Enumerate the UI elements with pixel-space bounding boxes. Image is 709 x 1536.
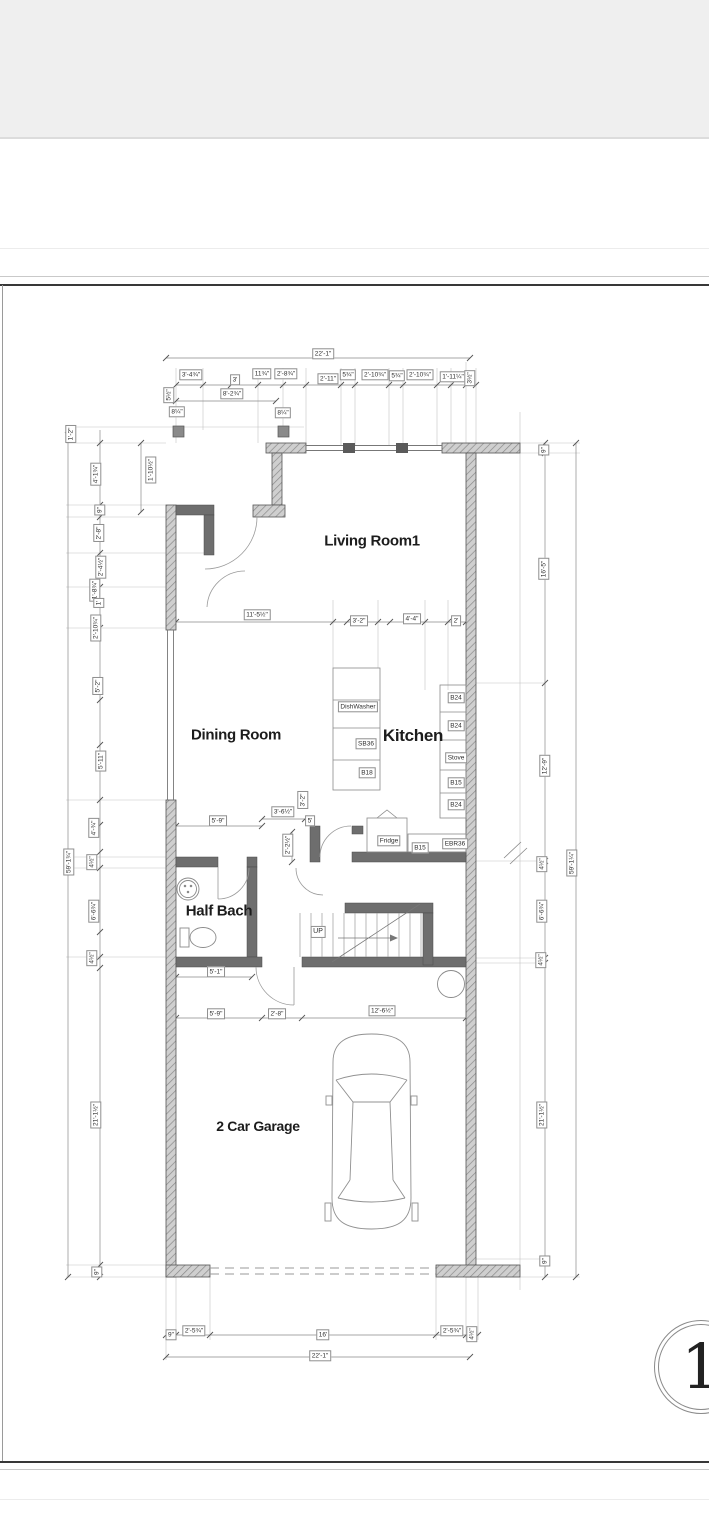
porch-post xyxy=(173,426,184,437)
dim-label: 8'-2¾" xyxy=(220,388,243,399)
dim-label: 5'-11" xyxy=(95,750,106,771)
dim-label: 3'-6½" xyxy=(271,806,294,817)
dim-label: 2'-8" xyxy=(93,524,104,542)
dim-label: 2'-4½" xyxy=(95,555,106,578)
dim-label: 2'-10¾" xyxy=(90,615,101,642)
room-label-half-bath: Half Bach xyxy=(186,903,253,920)
dim-label: 11¾" xyxy=(252,368,271,379)
dim-label: 21'-1½" xyxy=(90,1102,101,1129)
dim-label: 4'-¾" xyxy=(88,818,99,838)
dim-label: 3'-4¾" xyxy=(179,369,202,380)
dim-label: 5½" xyxy=(163,387,174,403)
dim-label: 22'-1" xyxy=(312,348,334,359)
dim-label: 1'-10½" xyxy=(145,457,156,484)
dim-label: 4½" xyxy=(535,952,546,968)
dim-label: 6'-6¾" xyxy=(536,899,547,922)
dim-label: 2'-5¾" xyxy=(182,1325,205,1336)
dim-label: 4½" xyxy=(86,950,97,966)
appliance-label-b18: B18 xyxy=(359,767,376,778)
dim-label: 3' xyxy=(230,374,240,385)
dim-label: 3'-2" xyxy=(297,791,308,809)
dim-label: 3'-2" xyxy=(350,615,368,626)
dim-label: 2'-10¾" xyxy=(407,369,434,380)
dim-label: 22'-1" xyxy=(309,1350,331,1361)
cabinet-label-ebr36: EBR36 xyxy=(442,838,468,849)
dim-label: 8¼" xyxy=(169,406,185,417)
floor-plan-page: { "plan": { "sheet_number": "1", "rooms"… xyxy=(0,0,709,1536)
dim-label: 3½" xyxy=(464,370,475,386)
dim-label: 2' xyxy=(451,615,461,626)
dim-label: 2'-10¾" xyxy=(362,369,389,380)
dim-label: 5' xyxy=(305,815,315,826)
window-mullion xyxy=(396,443,408,453)
sheet-number: 1 xyxy=(681,1336,709,1398)
cabinet-label-b24: B24 xyxy=(448,799,465,810)
dim-label: 5'-9" xyxy=(209,815,227,826)
dim-label: 5'-9" xyxy=(207,1008,225,1019)
dim-label: 1'-2" xyxy=(65,425,76,443)
bath-sink xyxy=(177,878,199,900)
cabinet-label-b15: B15 xyxy=(448,777,465,788)
dim-label: 5'-1" xyxy=(207,966,225,977)
appliance-label-stove: Stove xyxy=(445,752,467,763)
dim-label: 16' xyxy=(316,1329,329,1340)
stair-arrow xyxy=(390,935,398,942)
appliance-label-sb36: SB36 xyxy=(356,738,377,749)
dim-label: 12'-9" xyxy=(539,755,550,777)
dim-label: 4½" xyxy=(466,1326,477,1342)
dim-label: 4½" xyxy=(536,856,547,872)
dim-label: 4'-4" xyxy=(403,613,421,624)
room-label-garage: 2 Car Garage xyxy=(216,1118,300,1134)
dim-label: 2'-11" xyxy=(317,373,338,384)
garage-door-dashed xyxy=(210,1268,436,1274)
dim-label: 2'-8¾" xyxy=(274,368,297,379)
dim-label: 9" xyxy=(538,445,549,456)
cabinet-label-b24: B24 xyxy=(448,692,465,703)
porch-post xyxy=(278,426,289,437)
dim-label-overall: 59'-1¼" xyxy=(566,850,577,877)
appliance-label-dishwasher: DishWasher xyxy=(338,701,378,712)
dim-label-overall: 59'-1¾" xyxy=(63,849,74,876)
dim-label: 1' xyxy=(93,598,104,608)
dim-label: 8¼" xyxy=(275,407,291,418)
dim-label: 2'-2½" xyxy=(282,833,293,856)
dim-label: 21'-1½" xyxy=(536,1102,547,1129)
room-label-living: Living Room1 xyxy=(324,533,420,550)
cabinet-label-b15: B15 xyxy=(412,842,429,853)
kitchen-cabinets xyxy=(408,685,466,852)
dim-label: 6'-6¾" xyxy=(88,899,99,922)
dim-label: 16'-5" xyxy=(538,558,549,580)
dim-label: 2'-5¾" xyxy=(440,1325,463,1336)
door-arcs xyxy=(205,517,351,1005)
room-label-dining: Dining Room xyxy=(191,727,281,744)
dim-label: 1'-11¼" xyxy=(440,371,467,382)
stairs-up-label: UP xyxy=(311,926,326,938)
dim-label: 5'-2" xyxy=(92,677,103,695)
extension-lines xyxy=(66,362,580,1360)
dim-label: 2'-8" xyxy=(268,1008,286,1019)
dim-label: 12'-6½" xyxy=(369,1005,396,1016)
sheet-number-inner-circle: 1 xyxy=(658,1324,709,1410)
car-top-view xyxy=(325,1034,418,1229)
dim-label: 11'-5½" xyxy=(244,609,271,620)
dim-label: 9" xyxy=(91,1267,102,1278)
dimension-lines xyxy=(68,358,576,1357)
toilet xyxy=(180,928,216,948)
window-lines xyxy=(168,446,443,801)
dim-label: 4'-1¾" xyxy=(90,462,101,485)
dim-label: 9" xyxy=(539,1256,550,1267)
dim-label: 9" xyxy=(94,505,105,516)
exterior-walls xyxy=(166,443,520,1277)
window-mullion xyxy=(343,443,355,453)
dim-label: 9" xyxy=(166,1329,177,1340)
dim-label: 5¾" xyxy=(389,370,405,381)
room-label-kitchen: Kitchen xyxy=(383,726,443,746)
cabinet-label-b24: B24 xyxy=(448,720,465,731)
dim-label: 4½" xyxy=(86,854,97,870)
water-heater xyxy=(438,971,465,998)
dimension-ticks xyxy=(65,355,579,1360)
dim-label: 5¾" xyxy=(340,369,356,380)
appliance-label-fridge: Fridge xyxy=(377,835,400,846)
